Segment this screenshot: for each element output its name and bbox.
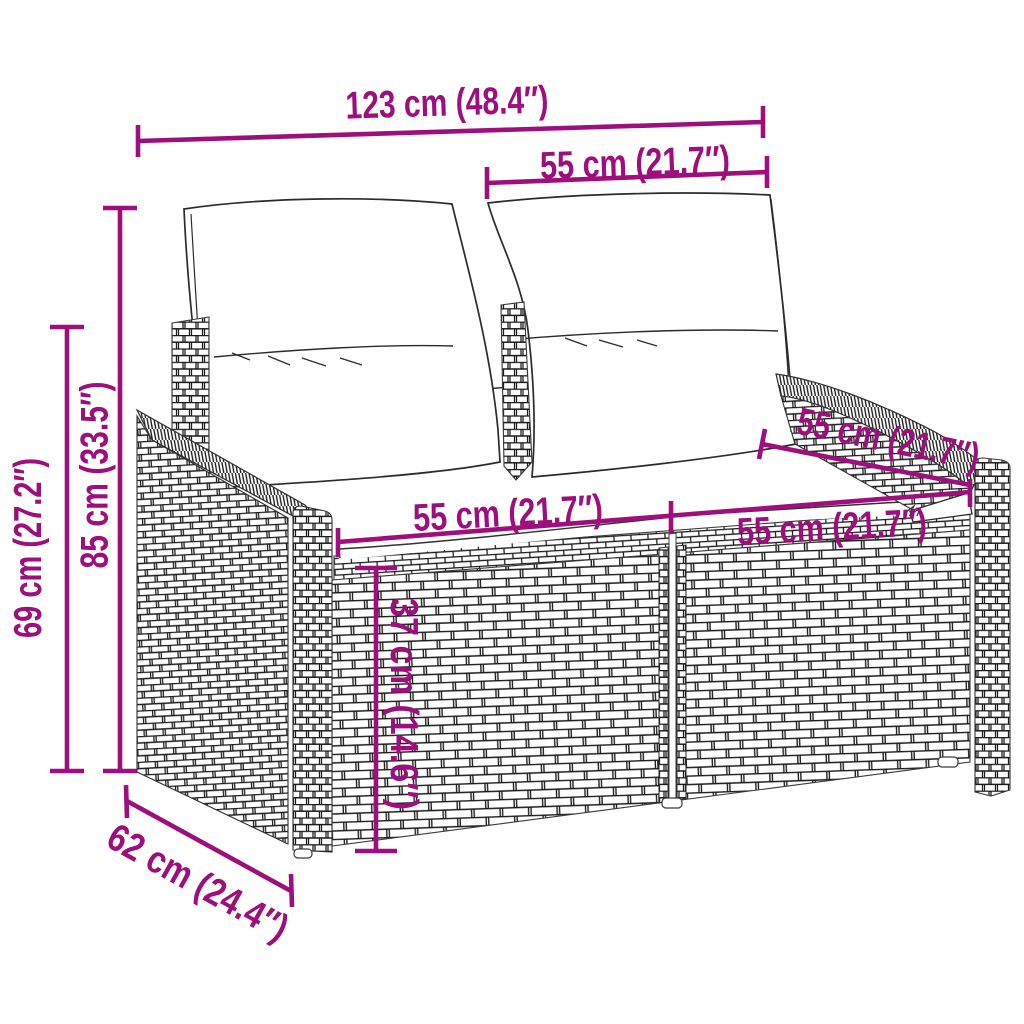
svg-text:55 cm (21.7″): 55 cm (21.7″) bbox=[539, 138, 730, 188]
svg-text:85 cm (33.5″): 85 cm (33.5″) bbox=[74, 382, 117, 569]
svg-text:37 cm (14.6″): 37 cm (14.6″) bbox=[382, 598, 425, 810]
svg-text:123 cm (48.4″): 123 cm (48.4″) bbox=[345, 78, 549, 127]
svg-text:69 cm (27.2″): 69 cm (27.2″) bbox=[7, 458, 50, 638]
